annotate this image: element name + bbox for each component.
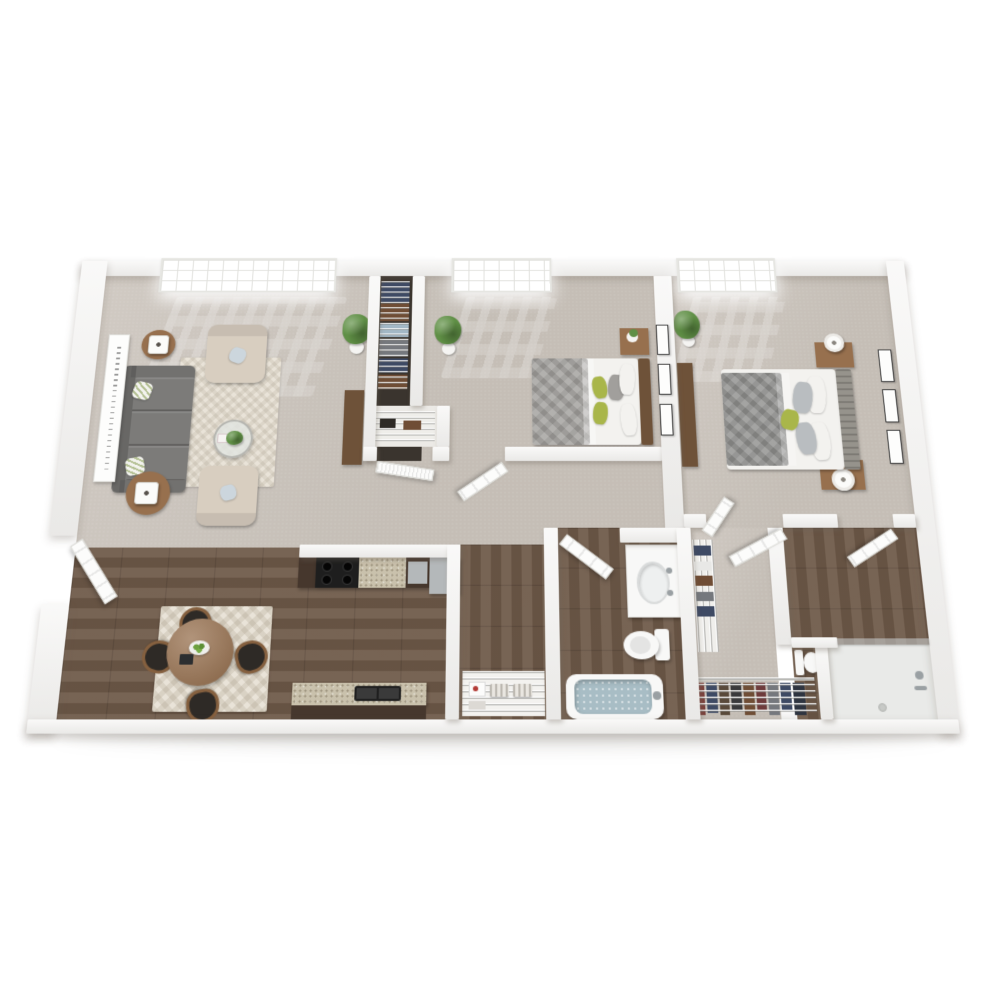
shower-control <box>915 671 924 680</box>
faucet <box>667 590 673 596</box>
floor-plan-render <box>0 0 1000 1000</box>
cabinet <box>298 558 317 588</box>
table-lamp <box>134 482 159 504</box>
clothes-item <box>693 546 711 556</box>
wall-bedroom2-south <box>783 514 839 528</box>
basket <box>490 684 509 697</box>
window-living <box>158 258 337 292</box>
nightstand-plant <box>629 329 638 337</box>
wall-bedroom1-south <box>505 447 662 461</box>
faucet <box>666 568 672 574</box>
dishwasher <box>408 562 428 584</box>
armchair <box>195 466 259 526</box>
shelf-item-red <box>473 686 478 691</box>
apartment-plan <box>26 261 960 734</box>
wall-kitchen-corridor <box>445 545 460 720</box>
rack-item <box>403 421 421 430</box>
double-sink <box>354 686 401 701</box>
rack-item <box>380 419 396 428</box>
armchair <box>204 325 268 383</box>
pillow-white <box>619 363 635 395</box>
basket <box>513 684 532 697</box>
clothes-item <box>696 592 714 601</box>
wall-bedroom2-south <box>892 514 916 528</box>
range-stove <box>315 558 359 588</box>
fruit-bowl <box>188 640 210 655</box>
clothes-item <box>694 562 712 571</box>
shower-handle <box>914 686 927 690</box>
shower-glass <box>837 638 929 644</box>
wire-shelf-overlay <box>378 281 410 389</box>
wall-bedroom1-south <box>432 447 449 461</box>
sink-basin <box>379 688 399 699</box>
bed <box>721 369 861 469</box>
pillow-patterned <box>792 381 814 414</box>
bed <box>532 358 654 444</box>
counter <box>358 558 406 588</box>
wall-shower-half <box>791 637 838 647</box>
window-bedroom1 <box>451 258 552 292</box>
vanity <box>625 545 684 618</box>
linen-shelf <box>462 671 545 716</box>
table-lamp <box>147 335 169 354</box>
wall-bedroom1-south <box>363 447 377 461</box>
bath-water <box>574 680 652 714</box>
closet-clothes <box>378 281 410 389</box>
sofa-arm <box>131 366 196 378</box>
clothes-item <box>695 576 713 586</box>
art-frame <box>656 325 670 355</box>
toilet-bowl <box>623 631 660 659</box>
armchair-back <box>208 325 268 336</box>
wall-outer-bottom <box>26 719 960 733</box>
wire-overlay <box>690 677 817 716</box>
potted-plant <box>434 316 461 344</box>
plant-pot <box>442 342 456 354</box>
wall-kitchen-north <box>299 545 460 558</box>
sink-basin <box>356 688 376 699</box>
wall-closet-stub <box>437 406 450 447</box>
coffee-table-plant <box>226 431 244 445</box>
duvet-fold <box>582 358 596 444</box>
shower-drain <box>878 703 887 712</box>
toilet-seat <box>630 636 652 654</box>
tablet <box>179 654 193 665</box>
hanging-clothes-rod <box>690 677 817 716</box>
console-table <box>342 390 365 465</box>
armchair-pillow <box>227 346 249 366</box>
armchair-pillow <box>219 483 238 502</box>
clothes-item <box>697 606 715 616</box>
wall-bath-north <box>620 528 686 543</box>
wire-rack <box>373 411 435 441</box>
art-frame <box>658 364 672 395</box>
wall-bedroom2-south <box>684 514 707 528</box>
towels <box>469 701 486 710</box>
armchair-back <box>195 513 256 526</box>
window-bedroom2 <box>676 258 777 292</box>
art-frame <box>659 404 673 436</box>
tub-faucet <box>653 691 662 700</box>
wall-closet-right <box>410 276 425 406</box>
bathtub <box>566 674 665 719</box>
peninsula-cabinet-face <box>291 705 426 719</box>
